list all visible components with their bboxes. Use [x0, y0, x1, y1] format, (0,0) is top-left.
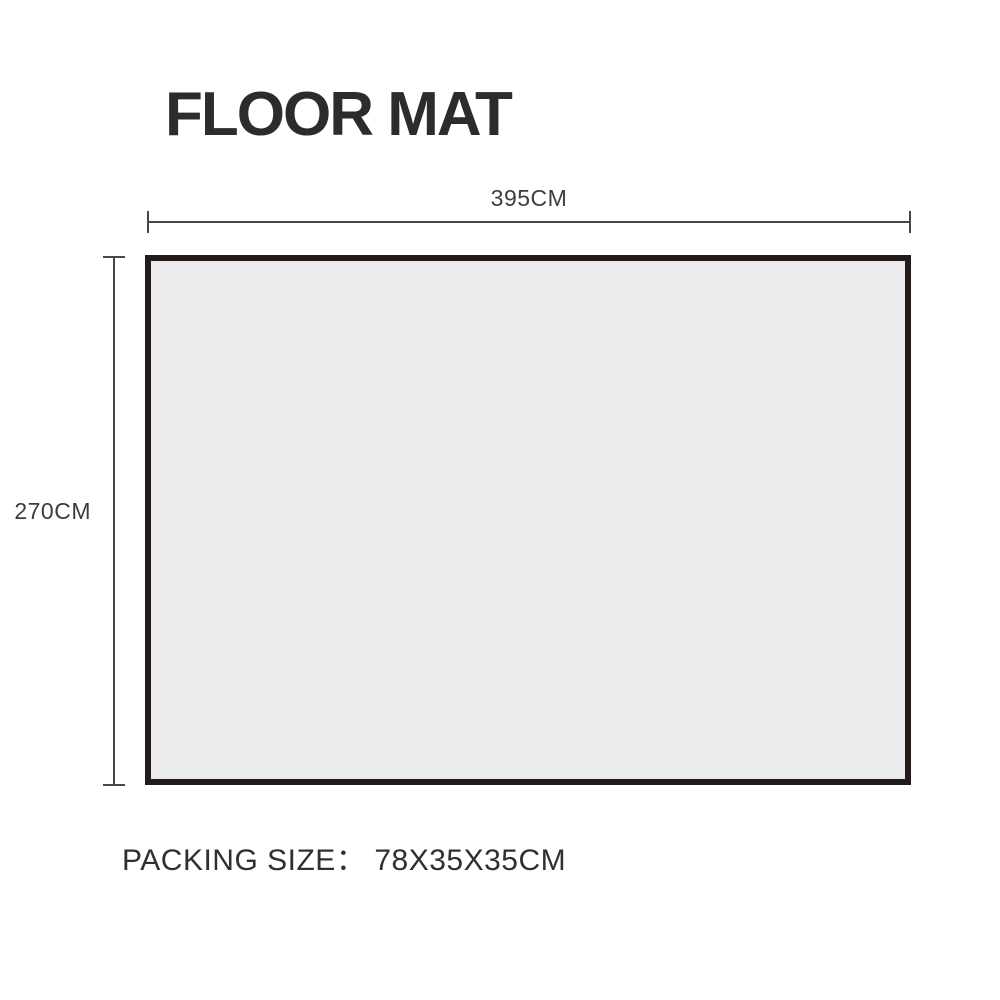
width-dimension-tick-right	[909, 211, 911, 233]
height-dimension-label: 270CM	[14, 498, 91, 525]
height-dimension-tick-bottom	[103, 784, 125, 786]
packing-size: PACKING SIZE：78X35X35CM	[122, 835, 566, 879]
width-dimension-label: 395CM	[147, 185, 911, 212]
height-dimension-line: 270CM	[103, 256, 125, 786]
height-dimension-rule	[113, 256, 115, 786]
width-dimension-tick-left	[147, 211, 149, 233]
floor-mat-infographic: FLOOR MAT 395CM 270CM PACKING SIZE：78X35…	[0, 0, 1000, 1000]
packing-size-value: 78X35X35CM	[374, 844, 566, 877]
height-dimension-tick-top	[103, 256, 125, 258]
packing-size-label: PACKING SIZE：	[122, 844, 366, 877]
page-title: FLOOR MAT	[165, 84, 511, 146]
floor-mat-rectangle	[145, 255, 911, 785]
width-dimension-rule	[147, 221, 911, 223]
width-dimension-line: 395CM	[147, 211, 911, 233]
